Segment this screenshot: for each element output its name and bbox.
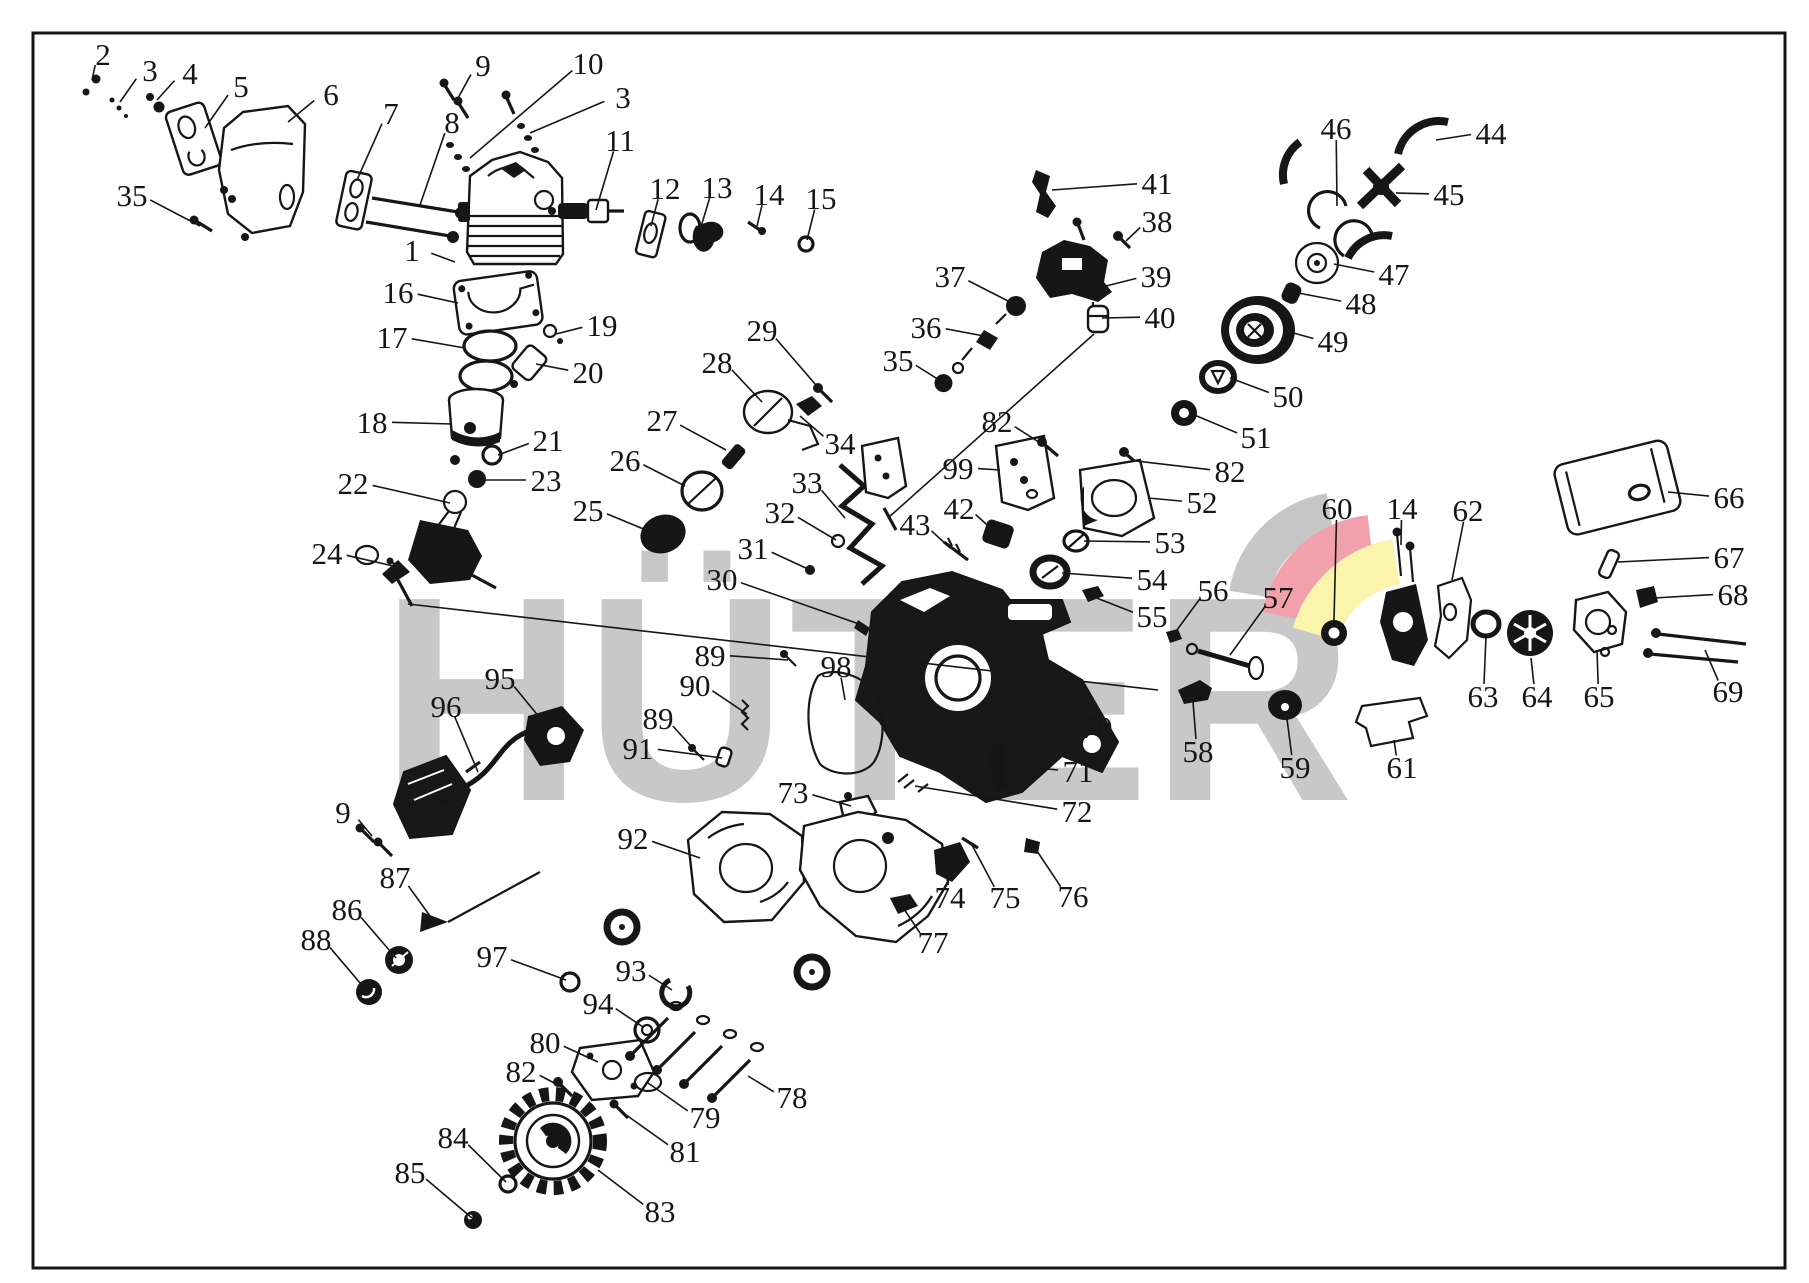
callout-label: 1 — [404, 233, 420, 268]
callout-label: 22 — [338, 466, 369, 501]
callout-label: 59 — [1280, 750, 1311, 785]
callout-leader-line — [776, 339, 822, 392]
callout-label: 42 — [944, 491, 975, 526]
callout-label: 10 — [573, 46, 604, 81]
callout-label: 71 — [1063, 754, 1094, 789]
callout-leader-line — [420, 133, 445, 205]
part-heat-shield — [164, 101, 222, 176]
part-cover-65 — [1574, 592, 1626, 652]
callout-label: 88 — [301, 922, 332, 957]
part-flywheel — [506, 1094, 600, 1188]
callout-label: 64 — [1522, 679, 1554, 714]
callout-label: 54 — [1137, 562, 1169, 597]
callout-label: 19 — [587, 308, 618, 343]
callout-leader-line — [748, 1076, 774, 1092]
part-drum-bearing — [1202, 363, 1234, 391]
callout-label: 35 — [117, 178, 148, 213]
callout-leader-line — [470, 71, 572, 158]
callout-leader-line — [468, 1145, 506, 1182]
callout-leader-line — [607, 514, 646, 530]
callout-leader-line — [1396, 193, 1429, 194]
callout-label: 43 — [900, 507, 931, 542]
part-muffler-cover — [219, 106, 305, 241]
callout-label: 13 — [702, 170, 733, 205]
callout-leader-line — [643, 465, 685, 486]
callout-leader-line — [1192, 414, 1237, 433]
callout-label: 4 — [182, 56, 198, 91]
callout-label: 51 — [1241, 420, 1272, 455]
callout-leader-line — [530, 101, 604, 133]
callout-label: 14 — [754, 177, 786, 212]
callout-label: 85 — [395, 1155, 426, 1190]
callout-label: 92 — [618, 821, 649, 856]
part-sprocket-64 — [1507, 610, 1553, 656]
callout-label: 90 — [680, 668, 711, 703]
callout-label: 23 — [531, 463, 562, 498]
callout-leader-line — [598, 1170, 643, 1204]
part-pin-67 — [1598, 549, 1620, 579]
part-clutch-shoes — [1283, 121, 1448, 258]
callout-label: 96 — [431, 689, 462, 724]
part-clutch-spider — [1360, 166, 1402, 206]
callout-label: 93 — [616, 953, 647, 988]
callout-label: 49 — [1318, 324, 1349, 359]
callout-label: 63 — [1468, 679, 1499, 714]
callout-leader-line — [556, 327, 582, 334]
part-intake-gaskets — [635, 210, 813, 258]
callout-label: 32 — [765, 495, 796, 530]
callout-label: 37 — [935, 259, 966, 294]
callout-label: 9 — [335, 795, 351, 830]
callout-leader-line — [1298, 293, 1341, 301]
callout-label: 68 — [1718, 577, 1749, 612]
callout-leader-line — [426, 1179, 472, 1218]
callout-label: 94 — [583, 986, 615, 1021]
callout-leader-line — [330, 948, 366, 990]
callout-label: 26 — [610, 443, 641, 478]
callout-leader-line — [1148, 498, 1182, 501]
callout-label: 6 — [323, 77, 339, 112]
part-worm-gear — [1268, 690, 1302, 720]
callout-label: 70 — [1082, 710, 1113, 745]
part-clutch-drum — [1221, 296, 1295, 364]
part-pin-27 — [720, 443, 747, 471]
part-cylinder — [458, 152, 563, 264]
callout-label: 48 — [1346, 286, 1377, 321]
callout-label: 76 — [1058, 879, 1089, 914]
callout-label: 67 — [1714, 540, 1745, 575]
callout-label: 18 — [357, 405, 388, 440]
callout-leader-line — [1126, 228, 1140, 241]
part-piston — [449, 389, 503, 465]
callout-leader-line — [408, 886, 430, 916]
callout-label: 21 — [533, 423, 564, 458]
callout-label: 24 — [312, 536, 344, 571]
callout-label: 84 — [438, 1120, 470, 1155]
part-top-cover — [1552, 439, 1682, 537]
part-drum-washer — [1171, 400, 1197, 426]
part-screw-35 — [190, 216, 213, 232]
callout-label: 53 — [1155, 525, 1186, 560]
callout-label: 66 — [1714, 480, 1745, 515]
callout-label: 39 — [1141, 259, 1172, 294]
callout-leader-line — [150, 200, 200, 226]
callout-label: 97 — [477, 939, 508, 974]
callout-label: 2 — [95, 37, 111, 72]
part-clip-68 — [1636, 586, 1658, 608]
callout-label: 99 — [943, 451, 974, 486]
callout-leader-line — [357, 124, 382, 180]
callout-label: 82 — [506, 1054, 537, 1089]
callout-label: 38 — [1142, 204, 1173, 239]
callout-label: 27 — [647, 403, 678, 438]
callout-label: 87 — [380, 860, 411, 895]
callout-leader-line — [732, 370, 762, 402]
callout-label: 41 — [1142, 166, 1173, 201]
callout-label: 77 — [918, 925, 949, 960]
callout-leader-line — [392, 422, 452, 424]
callout-label: 65 — [1584, 679, 1615, 714]
callout-leader-line — [946, 329, 984, 336]
part-oring-97 — [561, 973, 579, 991]
callout-label: 17 — [377, 320, 408, 355]
callout-label: 12 — [650, 171, 681, 206]
callout-label: 33 — [792, 465, 823, 500]
callout-leader-line — [622, 1112, 668, 1145]
callout-leader-line — [1102, 317, 1140, 318]
callout-label: 35 — [883, 343, 914, 378]
callout-label: 14 — [1387, 491, 1419, 526]
callout-leader-line — [373, 485, 450, 503]
part-gasket-62-hole — [1444, 604, 1456, 620]
callout-leader-line — [361, 917, 396, 958]
callout-label: 55 — [1137, 599, 1168, 634]
callout-label: 8 — [444, 105, 460, 140]
callout-label: 25 — [573, 493, 604, 528]
callout-leader-line — [1484, 636, 1486, 684]
callout-label: 72 — [1062, 794, 1093, 829]
callout-label: 28 — [702, 345, 733, 380]
callout-label: 47 — [1379, 257, 1410, 292]
callout-label: 15 — [806, 181, 837, 216]
callout-label: 75 — [990, 880, 1021, 915]
callout-leader-line — [1336, 140, 1337, 206]
callout-label: 11 — [605, 123, 635, 158]
callout-leader-line — [916, 365, 944, 383]
callout-label: 69 — [1713, 674, 1744, 709]
callout-label: 83 — [645, 1194, 676, 1229]
callout-label: 31 — [738, 531, 769, 566]
callout-leader-line — [1654, 595, 1713, 598]
callout-label: 5 — [233, 69, 249, 104]
callout-leader-line — [157, 81, 175, 100]
callout-leader-line — [978, 469, 1000, 470]
callout-label: 34 — [825, 426, 857, 461]
callout-label: 74 — [935, 880, 967, 915]
diagram-canvas: HÜTER — [0, 0, 1809, 1283]
callout-label: 9 — [475, 48, 491, 83]
callout-leader-line — [431, 253, 455, 262]
callout-leader-line — [418, 294, 458, 303]
callout-leader-line — [120, 79, 136, 102]
part-base-gasket — [453, 270, 544, 335]
callout-leader-line — [511, 960, 566, 980]
callout-label: 50 — [1273, 379, 1304, 414]
callout-label: 30 — [707, 562, 738, 597]
callout-label: 3 — [615, 80, 631, 115]
part-fuel-filter — [1088, 306, 1108, 332]
callout-label: 36 — [911, 310, 942, 345]
callout-leader-line — [498, 443, 529, 455]
callout-leader-line — [1618, 558, 1709, 562]
callout-leader-line — [205, 95, 228, 128]
callout-label: 46 — [1321, 111, 1352, 146]
part-fan-cover — [688, 812, 804, 922]
part-seal-ring — [682, 472, 722, 510]
part-piston-rings — [460, 331, 516, 391]
callout-label: 57 — [1263, 580, 1294, 615]
callout-leader-line — [616, 1009, 643, 1027]
part-oil-pump-cover — [1080, 460, 1154, 536]
callout-leader-line — [1436, 135, 1471, 140]
part-needle-bearing — [468, 470, 486, 488]
callout-label: 78 — [777, 1080, 808, 1115]
callout-label: 73 — [778, 775, 809, 810]
callout-label: 79 — [690, 1100, 721, 1135]
part-clutch-washer — [1296, 243, 1338, 283]
callout-leader-line — [1106, 278, 1136, 286]
callout-label: 56 — [1198, 573, 1229, 608]
part-throttle-linkage — [934, 296, 1026, 392]
callout-label: 98 — [821, 649, 852, 684]
callout-label: 86 — [332, 892, 363, 927]
callout-label: 82 — [1215, 454, 1246, 489]
callout-label: 82 — [982, 404, 1013, 439]
callout-leader-line — [968, 281, 1010, 302]
callout-label: 20 — [573, 355, 604, 390]
callout-leader-line — [680, 425, 726, 450]
callout-label: 52 — [1187, 485, 1218, 520]
callout-label: 16 — [383, 275, 414, 310]
callout-label: 7 — [383, 96, 399, 131]
callout-leader-line — [1052, 184, 1137, 190]
callout-label: 58 — [1183, 734, 1214, 769]
callout-leader-line — [1084, 541, 1150, 542]
part-starter-pawl — [744, 391, 822, 450]
callout-label: 44 — [1476, 116, 1508, 151]
callout-label: 61 — [1387, 750, 1418, 785]
callout-label: 91 — [623, 731, 654, 766]
callout-leader-line — [800, 416, 823, 436]
callout-label: 3 — [142, 53, 158, 88]
exploded-parts-diagram: HÜTER — [0, 0, 1809, 1283]
part-oil-seal — [1321, 620, 1347, 646]
callout-leader-line — [458, 75, 471, 98]
part-carburetor — [1036, 218, 1130, 313]
callout-label: 45 — [1434, 177, 1465, 212]
callout-label: 62 — [1453, 493, 1484, 528]
part-ring-63 — [1473, 612, 1499, 636]
callout-label: 29 — [747, 313, 778, 348]
callout-leader-line — [1230, 378, 1269, 392]
part-lever-87 — [420, 872, 540, 932]
callout-leader-line — [1334, 264, 1374, 272]
callout-label: 60 — [1322, 491, 1353, 526]
callout-label: 81 — [670, 1134, 701, 1169]
parts — [83, 75, 1747, 1230]
part-choke-lever — [1032, 170, 1056, 218]
callout-leader-line — [1136, 461, 1210, 470]
callout-leader-line — [412, 339, 465, 348]
part-gasket-61 — [1356, 698, 1427, 746]
callout-label: 95 — [485, 661, 516, 696]
callout-leader-line — [1452, 522, 1464, 580]
part-wrist-pin — [510, 325, 563, 388]
callout-label: 40 — [1145, 300, 1176, 335]
